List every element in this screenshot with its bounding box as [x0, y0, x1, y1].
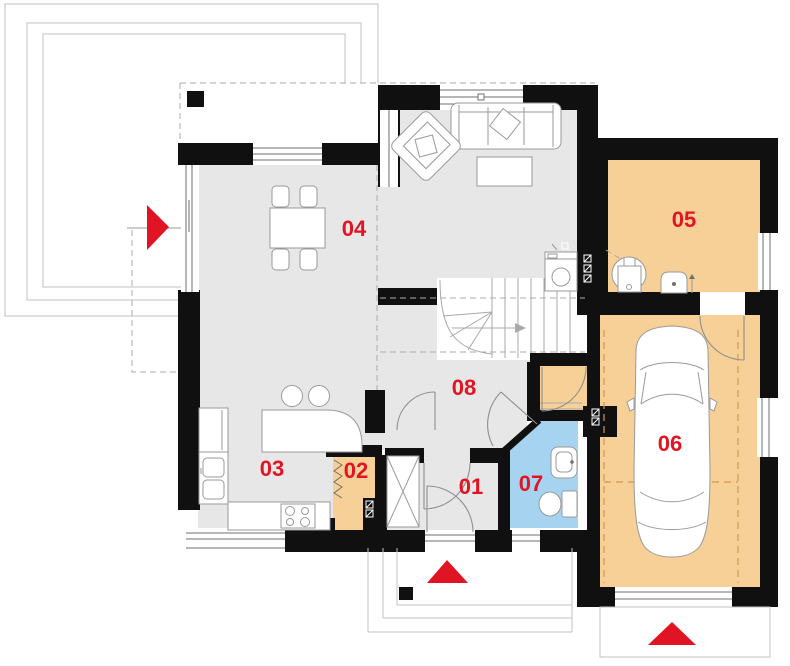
- room-03-label: 03: [260, 456, 284, 481]
- overhang-dashed-line: [132, 230, 180, 372]
- sofa: [451, 103, 561, 149]
- entrance-porch: [368, 548, 572, 632]
- terrace-entrance-arrow: [147, 205, 169, 250]
- terrace-glass-door[interactable]: [181, 165, 199, 292]
- floor-plan-page: 01 02 03 04 05 06 07 08: [0, 0, 790, 666]
- boiler-room-window: [758, 233, 776, 290]
- dining-table: [270, 208, 325, 248]
- bar-counter: [262, 410, 362, 452]
- porch-column-front: [399, 587, 413, 600]
- room-06-label: 06: [658, 431, 682, 456]
- room-04-label: 04: [342, 216, 367, 241]
- coffee-table: [477, 157, 532, 186]
- cooktop: [281, 504, 315, 528]
- main-entrance-door[interactable]: [425, 530, 475, 552]
- room-07-label: 07: [519, 471, 543, 496]
- bar-stool: [309, 386, 330, 407]
- chimney-block-garage: [583, 406, 617, 437]
- room-01-label: 01: [459, 474, 483, 499]
- main-entrance-arrow: [427, 560, 468, 583]
- garage-vestibule-floor: [538, 362, 587, 412]
- kitchen-window: [186, 528, 285, 548]
- bathroom-window: [512, 530, 540, 548]
- garage-apron: [600, 607, 770, 657]
- garage-entrance-arrow: [648, 622, 696, 645]
- room-02-label: 02: [344, 458, 368, 483]
- garage-window: [757, 398, 774, 457]
- kitchen-tall-cabinet: [199, 408, 228, 452]
- porch-column: [187, 91, 204, 107]
- dining-room-window: [253, 143, 322, 165]
- garage-gate[interactable]: [615, 587, 732, 607]
- bathroom-sink: [551, 447, 577, 478]
- bar-stool: [282, 386, 303, 407]
- room-05-label: 05: [672, 207, 696, 232]
- room-08-label: 08: [452, 375, 476, 400]
- floor-plan-svg: 01 02 03 04 05 06 07 08: [0, 0, 790, 666]
- wardrobe: [387, 456, 419, 527]
